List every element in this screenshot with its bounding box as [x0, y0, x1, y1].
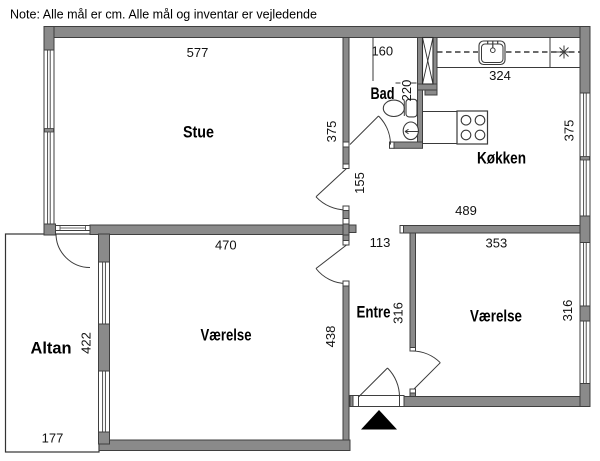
- svg-text:422: 422: [79, 332, 94, 354]
- svg-text:220: 220: [399, 80, 414, 102]
- svg-text:489: 489: [455, 203, 477, 218]
- svg-text:160: 160: [371, 44, 393, 59]
- svg-text:Stue: Stue: [183, 123, 214, 142]
- svg-text:470: 470: [215, 238, 237, 253]
- svg-text:324: 324: [489, 68, 511, 83]
- svg-text:113: 113: [370, 235, 391, 250]
- svg-text:438: 438: [323, 326, 338, 348]
- svg-text:177: 177: [42, 431, 64, 446]
- svg-text:375: 375: [562, 120, 577, 142]
- svg-text:Køkken: Køkken: [477, 149, 526, 168]
- svg-text:316: 316: [560, 300, 575, 322]
- svg-text:375: 375: [324, 121, 339, 143]
- svg-text:Altan: Altan: [31, 339, 72, 358]
- svg-text:155: 155: [352, 172, 367, 194]
- svg-text:Værelse: Værelse: [201, 326, 252, 345]
- svg-text:Entre: Entre: [357, 303, 391, 322]
- svg-text:Bad: Bad: [371, 84, 395, 103]
- svg-text:Værelse: Værelse: [470, 307, 522, 326]
- svg-text:316: 316: [391, 302, 406, 324]
- svg-text:353: 353: [486, 236, 508, 251]
- svg-text:Note: Alle mål er cm. Alle mål: Note: Alle mål er cm. Alle mål og invent…: [10, 7, 317, 22]
- svg-text:577: 577: [187, 45, 209, 60]
